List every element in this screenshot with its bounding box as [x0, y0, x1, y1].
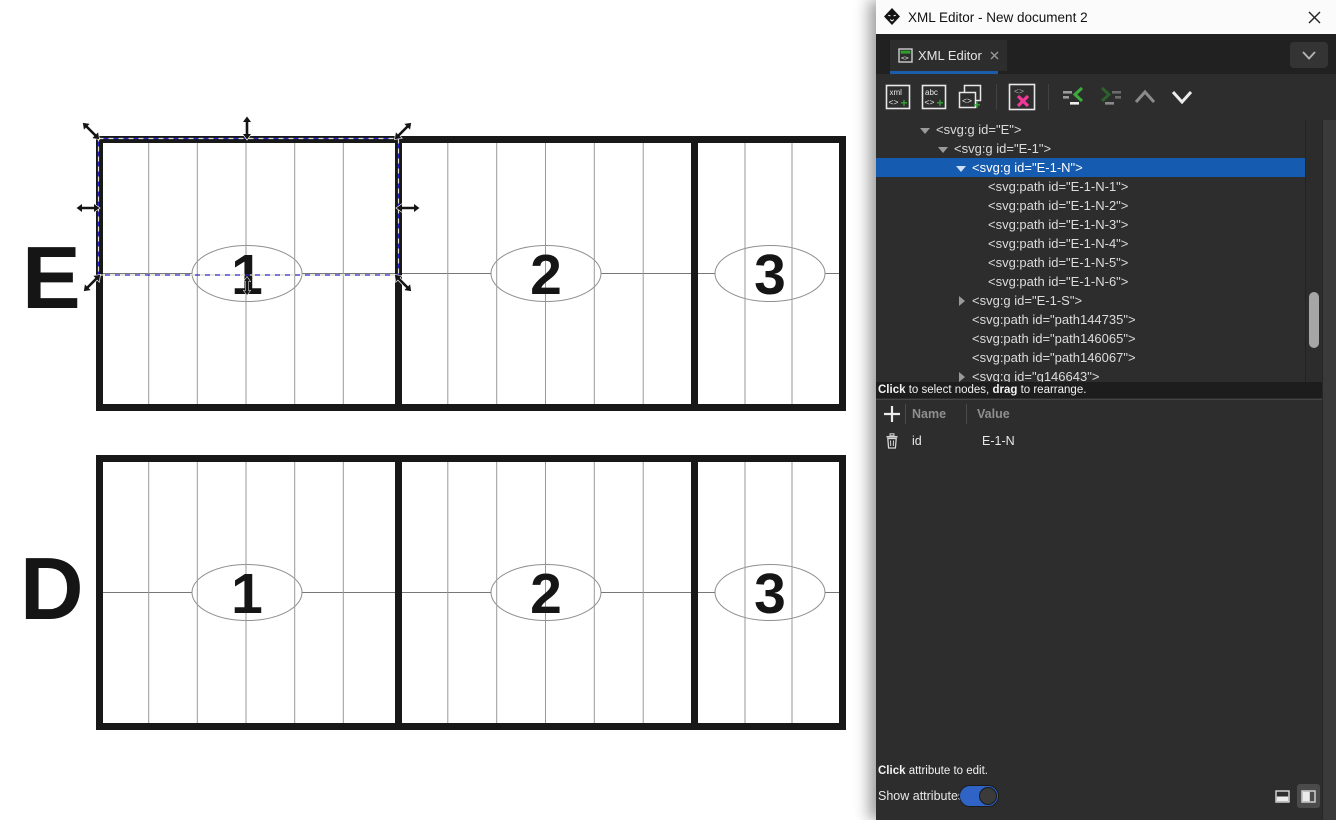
chevron-down-icon [1169, 88, 1195, 106]
move-node-up-button[interactable] [1130, 82, 1160, 112]
expander-icon[interactable] [954, 293, 970, 309]
indent-node-icon [1097, 85, 1123, 109]
expander-icon[interactable] [954, 160, 970, 176]
delete-node-button[interactable]: <> [1007, 82, 1037, 112]
xml-toolbar: xml <> + abc <> + <> + [876, 74, 1336, 121]
tree-node-row[interactable]: <svg:path id="E-1-N-3"> [876, 215, 1322, 234]
expander-spacer [954, 350, 970, 366]
window-titlebar[interactable]: XML Editor - New document 2 [876, 0, 1336, 34]
tree-node-row[interactable]: <svg:g id="E-1-S"> [876, 291, 1322, 310]
chevron-up-icon [1132, 88, 1158, 106]
attribute-hint-text: Click attribute to edit. [878, 765, 988, 777]
chevron-down-icon [1302, 51, 1316, 60]
expander-icon[interactable] [954, 369, 970, 383]
tree-scrollbar[interactable] [1305, 120, 1323, 382]
letter-label-d[interactable]: D [20, 539, 84, 638]
canvas[interactable]: E D 1 2 3 [0, 0, 876, 820]
expander-spacer [954, 331, 970, 347]
xml-editor-tab-icon: <> [898, 48, 913, 63]
tree-node-label: <svg:path id="E-1-N-4"> [988, 236, 1128, 251]
attributes-header: Name Value [876, 399, 1322, 428]
tree-node-label: <svg:path id="E-1-N-3"> [988, 217, 1128, 232]
attribute-row[interactable]: id E-1-N [876, 430, 1322, 452]
tree-hint-text: Click to select nodes, drag to rearrange… [876, 382, 1322, 398]
move-node-down-button[interactable] [1167, 82, 1197, 112]
panel-tabbar: <> XML Editor [876, 34, 1336, 74]
tree-node-label: <svg:path id="E-1-N-5"> [988, 255, 1128, 270]
expander-spacer [970, 236, 986, 252]
panel-resize-gutter[interactable] [1322, 120, 1336, 820]
xml-editor-panel: XML Editor - New document 2 <> XML Edito… [876, 0, 1336, 820]
inkscape-logo-icon [882, 7, 902, 27]
horizontal-layout-button[interactable] [1271, 784, 1294, 808]
unindent-node-button[interactable] [1059, 82, 1089, 112]
window-title: XML Editor - New document 2 [908, 10, 1088, 25]
tree-node-label: <svg:path id="E-1-N-6"> [988, 274, 1128, 289]
indent-node-button[interactable] [1095, 82, 1125, 112]
close-icon [1308, 11, 1321, 24]
expander-spacer [970, 217, 986, 233]
screen: E D 1 2 3 [0, 0, 1336, 820]
tree-node-row[interactable]: <svg:path id="E-1-N-1"> [876, 177, 1322, 196]
trash-icon [885, 433, 899, 449]
tree-node-label: <svg:path id="E-1-N-2"> [988, 198, 1128, 213]
tab-xml-editor[interactable]: <> XML Editor [890, 40, 1007, 71]
structure-d[interactable]: 1 2 3 [100, 455, 843, 730]
expander-spacer [970, 198, 986, 214]
attribute-value[interactable]: E-1-N [982, 434, 1015, 448]
duplicate-node-icon: <> + [956, 83, 984, 111]
tree-node-label: <svg:path id="path144735"> [972, 312, 1136, 327]
attribute-name-header: Name [912, 407, 966, 421]
window-close-button[interactable] [1304, 7, 1324, 27]
tab-label: XML Editor [918, 48, 982, 63]
new-element-node-button[interactable]: xml <> + [883, 82, 913, 112]
expander-icon[interactable] [918, 122, 934, 138]
tree-node-row[interactable]: <svg:path id="E-1-N-4"> [876, 234, 1322, 253]
expander-spacer [970, 255, 986, 271]
tree-node-label: <svg:path id="E-1-N-1"> [988, 179, 1128, 194]
panel-menu-button[interactable] [1290, 42, 1328, 68]
tree-node-row[interactable]: <svg:path id="E-1-N-6"> [876, 272, 1322, 291]
tree-node-row[interactable]: <svg:g id="E-1"> [876, 139, 1322, 158]
tree-node-row[interactable]: <svg:path id="path146065"> [876, 329, 1322, 348]
svg-text:<>: <> [901, 54, 909, 62]
section-number[interactable]: 3 [754, 562, 786, 626]
xml-node-tree[interactable]: <svg:g id="E"> <svg:g id="E-1"> <svg:g i… [876, 120, 1322, 382]
vertical-split-icon [1301, 790, 1316, 803]
tree-node-row[interactable]: <svg:path id="path146067"> [876, 348, 1322, 367]
scale-handle-nw[interactable] [80, 120, 102, 142]
toolbar-separator [996, 84, 997, 110]
add-attribute-button[interactable] [879, 402, 905, 426]
new-element-node-icon: xml <> + [884, 83, 912, 111]
svg-text:<>: <> [962, 96, 972, 106]
tree-node-row[interactable]: <svg:path id="E-1-N-2"> [876, 196, 1322, 215]
delete-attribute-button[interactable] [879, 431, 905, 451]
expander-icon[interactable] [936, 141, 952, 157]
svg-text:+: + [901, 96, 908, 110]
svg-text:<>: <> [1014, 86, 1024, 96]
column-separator[interactable] [905, 404, 906, 424]
scale-handle-w[interactable] [77, 204, 100, 212]
horizontal-split-icon [1275, 790, 1290, 803]
plus-icon [882, 404, 902, 424]
tree-node-label: <svg:path id="path146067"> [972, 350, 1136, 365]
tree-node-label: <svg:g id="E-1"> [954, 141, 1051, 156]
svg-text:+: + [974, 98, 981, 111]
tree-node-label: <svg:g id="E-1-N"> [972, 160, 1083, 175]
svg-text:<>: <> [925, 97, 935, 107]
panel-layout-buttons [1271, 784, 1320, 808]
tree-node-row[interactable]: <svg:path id="path144735"> [876, 310, 1322, 329]
toggle-knob [979, 787, 997, 805]
unindent-node-icon [1061, 85, 1087, 109]
svg-text:+: + [937, 96, 944, 110]
show-attributes-label: Show attributes [878, 789, 964, 803]
column-separator[interactable] [966, 404, 967, 424]
tree-scrollbar-thumb[interactable] [1309, 292, 1319, 348]
vertical-layout-button[interactable] [1297, 784, 1320, 808]
structure-e[interactable]: 1 2 3 [100, 136, 843, 411]
expander-spacer [970, 179, 986, 195]
svg-text:<>: <> [889, 97, 899, 107]
attribute-value-header: Value [977, 407, 1010, 421]
tree-node-row-selected[interactable]: <svg:g id="E-1-N"> [876, 158, 1322, 177]
tree-node-label: <svg:g id="g146643"> [972, 369, 1099, 382]
expander-spacer [954, 312, 970, 328]
new-text-node-button[interactable]: abc <> + [919, 82, 949, 112]
new-text-node-icon: abc <> + [920, 83, 948, 111]
letter-label-e[interactable]: E [22, 228, 81, 327]
delete-node-icon: <> [1007, 82, 1037, 112]
duplicate-node-button[interactable]: <> + [955, 82, 985, 112]
tree-node-label: <svg:path id="path146065"> [972, 331, 1136, 346]
section-number[interactable]: 2 [530, 243, 562, 307]
tree-node-row[interactable]: <svg:g id="E"> [876, 120, 1322, 139]
tree-node-row[interactable]: <svg:path id="E-1-N-5"> [876, 253, 1322, 272]
section-number[interactable]: 3 [754, 243, 786, 307]
expander-spacer [970, 274, 986, 290]
tree-node-row[interactable]: <svg:g id="g146643"> [876, 367, 1322, 382]
section-number[interactable]: 1 [231, 562, 263, 626]
attribute-name[interactable]: id [912, 434, 971, 448]
tab-close-icon[interactable] [990, 51, 999, 60]
tree-node-label: <svg:g id="E-1-S"> [972, 293, 1082, 308]
toolbar-separator [1048, 84, 1049, 110]
tree-node-label: <svg:g id="E"> [936, 122, 1021, 137]
scale-handle-n[interactable] [243, 117, 251, 140]
show-attributes-toggle[interactable] [959, 785, 999, 807]
section-number[interactable]: 2 [530, 562, 562, 626]
